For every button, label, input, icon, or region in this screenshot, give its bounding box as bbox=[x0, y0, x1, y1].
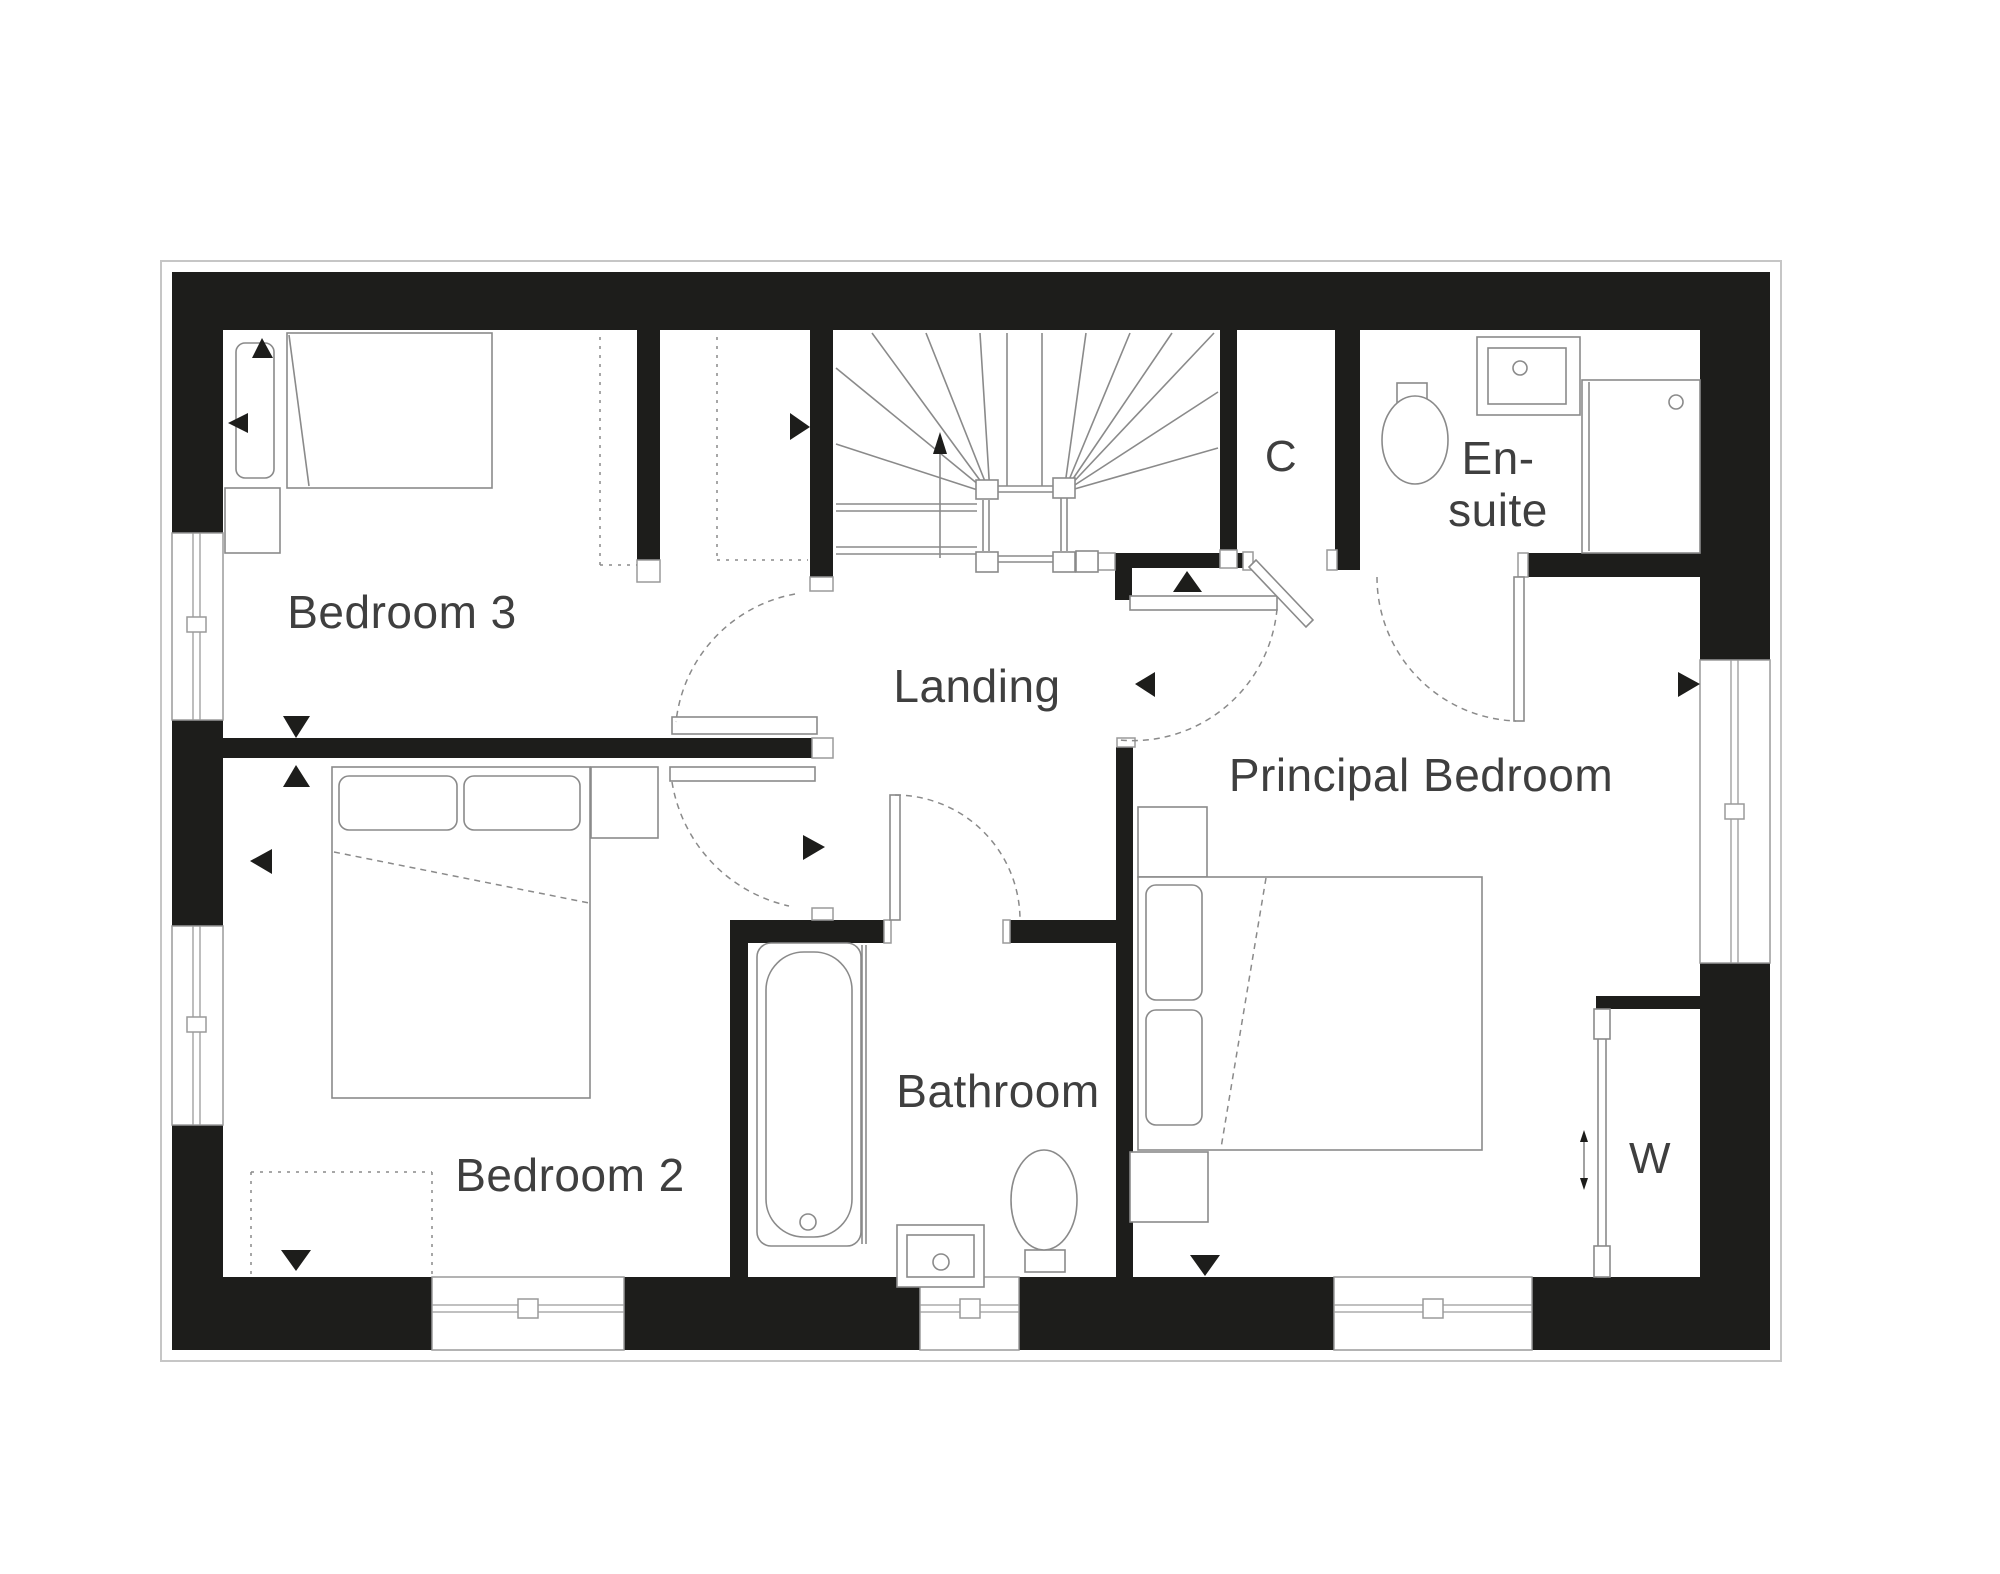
jamb-principal-west-wall bbox=[1117, 738, 1135, 747]
floorplan-drawing: Bedroom 3 Landing C En- suite Principal … bbox=[0, 0, 2000, 1574]
pillow bbox=[236, 343, 274, 478]
wall-cupboard-west bbox=[1220, 330, 1237, 550]
staircase bbox=[836, 333, 1218, 572]
pillow bbox=[464, 776, 580, 830]
bedside-table bbox=[591, 767, 658, 838]
label-bedroom3: Bedroom 3 bbox=[287, 586, 517, 638]
pillow bbox=[339, 776, 457, 830]
wall-right-lower bbox=[1700, 963, 1770, 1277]
bedside-table bbox=[1138, 807, 1207, 877]
toilet-ensuite bbox=[1382, 383, 1448, 484]
label-ensuite-line2: suite bbox=[1448, 484, 1548, 536]
window-bedroom3-left bbox=[172, 533, 223, 720]
window-principal-bottom bbox=[1334, 1277, 1532, 1350]
dashed-wardrobe-bedroom2 bbox=[251, 1172, 432, 1277]
bedside-table bbox=[1130, 1152, 1208, 1222]
jamb-bedroom2-door-south bbox=[812, 908, 833, 920]
basin-ensuite bbox=[1477, 337, 1580, 415]
wall-bottom-1 bbox=[172, 1277, 432, 1350]
wall-wardrobe-north bbox=[1596, 996, 1700, 1009]
door-leaf bbox=[672, 717, 817, 734]
wall-stairs-west bbox=[810, 330, 833, 577]
wall-top bbox=[172, 272, 1770, 330]
wall-bathroom-north bbox=[730, 920, 890, 943]
label-cupboard: C bbox=[1265, 432, 1297, 481]
arrow-right-bedroom3-nook bbox=[790, 413, 810, 440]
door-principal-bedroom bbox=[1119, 596, 1277, 741]
label-landing: Landing bbox=[893, 660, 1060, 712]
door-leaf bbox=[1514, 577, 1524, 721]
door-bedroom3 bbox=[672, 594, 817, 734]
bedside-table bbox=[225, 488, 280, 553]
window-principal-right bbox=[1700, 660, 1770, 963]
arrow-left-bedroom2 bbox=[250, 849, 272, 874]
bathtub bbox=[757, 943, 866, 1246]
arrow-right-landing bbox=[803, 835, 825, 860]
arrow-up-principal-door bbox=[1173, 571, 1202, 592]
wall-cupboard-east bbox=[1335, 330, 1360, 570]
stairs-direction-arrow bbox=[933, 432, 947, 558]
stairs-winder-treads bbox=[836, 333, 1218, 494]
wall-ensuite-south bbox=[1528, 553, 1700, 577]
label-bedroom2: Bedroom 2 bbox=[455, 1149, 685, 1201]
shower-drain bbox=[1669, 395, 1683, 409]
arrow-down-principal-window bbox=[1190, 1255, 1220, 1276]
wardrobe-sliding-door bbox=[1580, 1009, 1610, 1277]
bedroom2-furniture bbox=[332, 767, 658, 1098]
basin-tap bbox=[1513, 361, 1527, 375]
wall-bath-alcove-west bbox=[730, 943, 748, 1277]
basin-bathroom bbox=[897, 1225, 984, 1287]
door-bathroom bbox=[890, 795, 1020, 920]
slide-arrow-up bbox=[1580, 1130, 1588, 1142]
wall-bedroom3-east bbox=[637, 330, 660, 560]
label-wardrobe: W bbox=[1629, 1134, 1671, 1183]
door-swing-arc bbox=[676, 594, 795, 722]
arrow-down-bedroom2-window bbox=[281, 1250, 311, 1271]
shower-ensuite bbox=[1582, 380, 1700, 553]
arrow-up-divider-wall bbox=[283, 765, 310, 787]
door-cupboard-leaf bbox=[1249, 560, 1313, 627]
arrow-left-principal bbox=[1135, 672, 1155, 697]
jamb-cupboard-west bbox=[1220, 550, 1237, 568]
door-swing-arc bbox=[895, 795, 1020, 920]
pillow bbox=[1146, 885, 1202, 1000]
basin-tap bbox=[933, 1254, 949, 1270]
bath-drain bbox=[800, 1214, 816, 1230]
jamb-bathroom-door-east bbox=[1003, 920, 1010, 943]
door-swing-arc bbox=[672, 782, 789, 906]
wall-left-upper bbox=[172, 330, 223, 533]
jamb-bathroom-door-west bbox=[884, 920, 891, 943]
wall-bottom-4 bbox=[1532, 1277, 1770, 1350]
door-bedroom2 bbox=[670, 767, 815, 906]
label-ensuite-line1: En- bbox=[1461, 432, 1534, 484]
label-principal-bedroom: Principal Bedroom bbox=[1229, 749, 1613, 801]
door-leaf bbox=[1130, 596, 1277, 610]
jamb-divider-wall-end bbox=[812, 738, 833, 758]
floorplan-canvas: Bedroom 3 Landing C En- suite Principal … bbox=[0, 0, 2000, 1574]
pillow bbox=[1146, 1010, 1202, 1125]
principal-bedroom-furniture bbox=[1130, 807, 1610, 1277]
bedroom3-furniture bbox=[225, 333, 492, 553]
wall-left-lower bbox=[172, 1125, 223, 1277]
door-ensuite bbox=[1377, 577, 1524, 721]
wall-left-middle bbox=[172, 720, 223, 926]
door-leaf bbox=[670, 767, 815, 781]
wall-bedroom2-bedroom3-divider bbox=[223, 738, 812, 758]
wall-bottom-3 bbox=[1019, 1277, 1334, 1350]
jamb-stairs-wall-end bbox=[810, 577, 833, 591]
window-bedroom2-bottom bbox=[432, 1277, 624, 1350]
arrow-right-principal-window bbox=[1678, 672, 1700, 697]
door-leaf bbox=[890, 795, 900, 920]
window-bathroom-bottom bbox=[920, 1277, 1019, 1350]
jamb-cupboard-east bbox=[1327, 550, 1337, 570]
toilet-bathroom bbox=[1011, 1150, 1077, 1272]
arrow-down-divider-wall bbox=[283, 716, 310, 738]
label-bathroom: Bathroom bbox=[896, 1065, 1099, 1117]
jamb-bedroom3-wall-end bbox=[637, 560, 660, 582]
window-bedroom2-left bbox=[172, 926, 223, 1125]
wall-bottom-2 bbox=[624, 1277, 920, 1350]
slide-arrow-down bbox=[1580, 1178, 1588, 1190]
single-bed bbox=[287, 333, 492, 488]
wall-right-upper bbox=[1700, 330, 1770, 660]
door-swing-arc bbox=[1377, 577, 1516, 721]
wall-bathroom-north-east bbox=[1010, 920, 1116, 943]
jamb-ensuite-door bbox=[1518, 553, 1528, 577]
door-swing-arc bbox=[1119, 609, 1277, 741]
jamb-principal-door-west bbox=[1098, 553, 1115, 570]
